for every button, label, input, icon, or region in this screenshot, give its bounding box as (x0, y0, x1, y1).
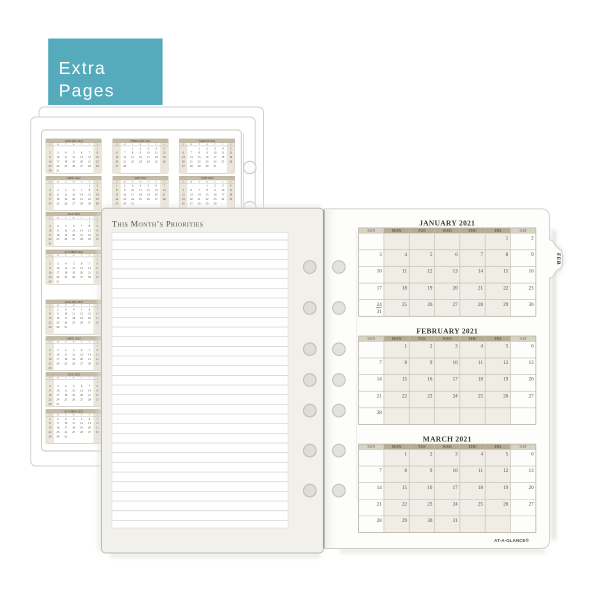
svg-text:18: 18 (402, 286, 408, 291)
svg-text:16: 16 (427, 378, 433, 383)
svg-text:21: 21 (377, 394, 383, 399)
svg-text:19: 19 (503, 378, 509, 383)
svg-text:FEBRUARY 2022: FEBRUARY 2022 (130, 140, 151, 143)
svg-text:12: 12 (427, 270, 433, 275)
svg-text:22: 22 (402, 502, 408, 507)
svg-text:10: 10 (377, 270, 383, 275)
svg-text:11: 11 (402, 270, 407, 275)
svg-text:28: 28 (377, 411, 383, 416)
svg-text:WED: WED (443, 229, 452, 233)
svg-text:15: 15 (402, 378, 408, 383)
svg-text:26: 26 (503, 394, 509, 399)
svg-text:MON: MON (392, 445, 402, 449)
svg-text:20: 20 (529, 378, 535, 383)
svg-text:30: 30 (529, 303, 535, 308)
svg-text:SUN: SUN (367, 229, 375, 233)
svg-text:20: 20 (453, 286, 459, 291)
svg-text:18: 18 (478, 486, 484, 491)
svg-text:FRI: FRI (494, 229, 501, 233)
svg-text:21: 21 (478, 286, 484, 291)
svg-text:SUN: SUN (367, 445, 375, 449)
svg-text:AT-A-GLANCE®: AT-A-GLANCE® (494, 538, 529, 543)
svg-text:THU: THU (468, 337, 477, 341)
svg-text:17: 17 (453, 378, 459, 383)
svg-text:17: 17 (377, 286, 383, 291)
svg-text:OCTOBER 2022: OCTOBER 2022 (64, 251, 83, 254)
svg-text:13: 13 (529, 469, 535, 474)
svg-text:12: 12 (503, 361, 509, 366)
svg-text:11: 11 (478, 361, 483, 366)
svg-text:Pages: Pages (59, 81, 115, 101)
svg-text:SUN: SUN (367, 337, 375, 341)
svg-text:MARCH 2022: MARCH 2022 (199, 140, 216, 143)
svg-text:APRIL 2022: APRIL 2022 (67, 177, 81, 180)
svg-text:OCTOBER 2023: OCTOBER 2023 (64, 410, 83, 413)
svg-text:15: 15 (503, 270, 509, 275)
svg-text:JANUARY 2021: JANUARY 2021 (419, 218, 475, 227)
svg-text:27: 27 (529, 394, 535, 399)
svg-text:24: 24 (453, 394, 459, 399)
svg-text:SAT: SAT (519, 337, 527, 341)
svg-text:SAT: SAT (519, 445, 527, 449)
svg-text:13: 13 (529, 361, 535, 366)
svg-text:JANUARY 2022: JANUARY 2022 (64, 140, 83, 143)
svg-text:MAY 2022: MAY 2022 (134, 177, 147, 180)
svg-text:28: 28 (478, 303, 484, 308)
svg-text:27: 27 (529, 502, 535, 507)
svg-text:25: 25 (478, 394, 484, 399)
svg-text:THU: THU (468, 229, 477, 233)
svg-text:12: 12 (503, 469, 509, 474)
svg-text:MON: MON (392, 337, 402, 341)
svg-text:TUE: TUE (418, 337, 426, 341)
svg-text:MON: MON (392, 229, 402, 233)
svg-text:16: 16 (427, 486, 433, 491)
svg-text:WED: WED (443, 337, 452, 341)
svg-text:31: 31 (453, 519, 459, 524)
svg-text:29: 29 (503, 303, 509, 308)
svg-text:23: 23 (427, 502, 433, 507)
svg-text:16: 16 (529, 270, 535, 275)
svg-text:19: 19 (427, 286, 433, 291)
svg-text:14: 14 (377, 486, 383, 491)
svg-text:18: 18 (478, 378, 484, 383)
svg-text:28: 28 (377, 519, 383, 524)
svg-text:SAT: SAT (519, 229, 527, 233)
svg-text:JULY 2022: JULY 2022 (68, 213, 81, 216)
svg-text:FRI: FRI (494, 445, 501, 449)
svg-text:13: 13 (453, 270, 459, 275)
svg-text:23: 23 (427, 394, 433, 399)
svg-text:JULY 2023: JULY 2023 (68, 373, 81, 376)
svg-text:31: 31 (377, 310, 383, 315)
svg-text:JANUARY 2023: JANUARY 2023 (64, 301, 83, 304)
svg-text:11: 11 (478, 469, 483, 474)
svg-text:MARCH 2021: MARCH 2021 (423, 435, 472, 444)
svg-text:JUNE 2022: JUNE 2022 (201, 177, 214, 180)
svg-text:10: 10 (453, 361, 459, 366)
svg-text:19: 19 (503, 486, 509, 491)
svg-text:29: 29 (402, 519, 408, 524)
svg-text:26: 26 (427, 303, 433, 308)
svg-text:14: 14 (377, 378, 383, 383)
svg-text:TUE: TUE (418, 445, 426, 449)
svg-text:25: 25 (402, 303, 408, 308)
svg-text:15: 15 (402, 486, 408, 491)
svg-text:22: 22 (503, 286, 509, 291)
svg-text:FEBRUARY 2021: FEBRUARY 2021 (416, 327, 478, 336)
svg-text:FEB: FEB (555, 253, 561, 265)
svg-text:21: 21 (377, 502, 383, 507)
svg-text:24: 24 (453, 502, 459, 507)
svg-text:APRIL 2023: APRIL 2023 (67, 337, 81, 340)
svg-text:22: 22 (402, 394, 408, 399)
svg-text:30: 30 (427, 519, 433, 524)
svg-text:Extra: Extra (59, 58, 106, 78)
svg-text:26: 26 (503, 502, 509, 507)
svg-text:THU: THU (468, 445, 477, 449)
svg-text:TUE: TUE (418, 229, 426, 233)
svg-text:27: 27 (453, 303, 459, 308)
svg-text:20: 20 (529, 486, 535, 491)
svg-text:23: 23 (529, 286, 535, 291)
svg-text:25: 25 (478, 502, 484, 507)
svg-text:17: 17 (453, 486, 459, 491)
svg-text:FRI: FRI (494, 337, 501, 341)
svg-text:WED: WED (443, 445, 452, 449)
svg-text:This Month’s Priorities: This Month’s Priorities (112, 220, 204, 229)
svg-text:14: 14 (478, 270, 484, 275)
svg-text:10: 10 (453, 469, 459, 474)
